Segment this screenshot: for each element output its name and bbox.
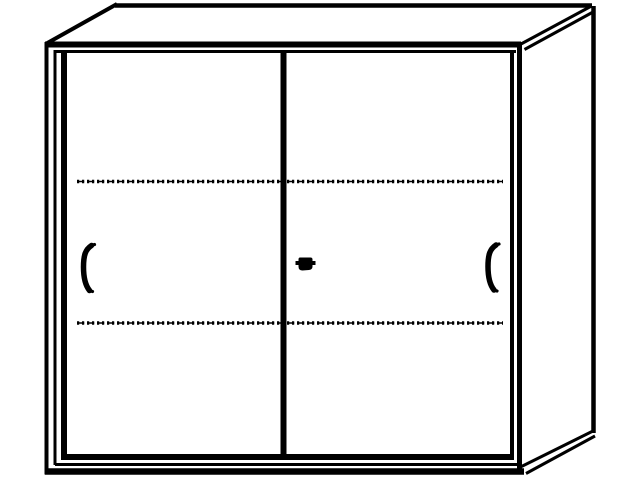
right-side-bottom-edge-inner <box>522 432 593 467</box>
left-door-handle <box>84 245 95 292</box>
sliding-doors <box>61 52 514 459</box>
right-handle-bottom-post <box>494 290 497 291</box>
top-panel-right-edge-outer <box>525 12 595 50</box>
right-handle-top-post <box>496 244 499 245</box>
left-handle-bow <box>84 246 92 291</box>
cabinet-line-drawing <box>0 0 640 480</box>
right-side-bottom-edge-outer <box>526 436 595 474</box>
lock-keyhole-icon <box>296 258 316 271</box>
left-handle-top-post <box>92 245 95 246</box>
left-handle-bottom-post <box>90 291 93 292</box>
top-panel-right-edge-inner <box>521 6 592 44</box>
cabinet-illustration <box>0 0 640 480</box>
top-panel-left-edge <box>47 4 118 44</box>
right-handle-bow <box>488 245 496 290</box>
right-door-handle <box>488 244 499 291</box>
